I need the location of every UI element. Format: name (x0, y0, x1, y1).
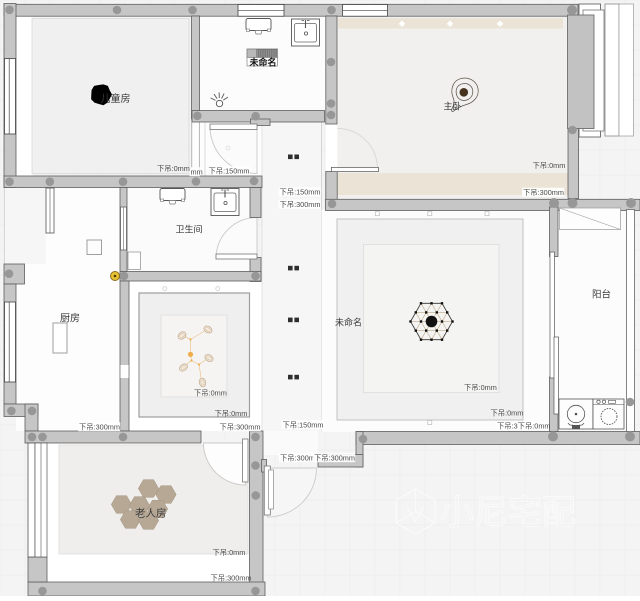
svg-text:下吊:0mm: 下吊:0mm (533, 161, 566, 170)
svg-text:主卧: 主卧 (444, 101, 462, 112)
svg-text:下吊:150mm: 下吊:150mm (283, 421, 324, 430)
svg-text:下吊:0mm: 下吊:0mm (213, 548, 246, 557)
svg-text:下吊:300mm: 下吊:300mm (523, 188, 564, 197)
svg-text:儿童房: 儿童房 (101, 92, 131, 105)
svg-text:厨房: 厨房 (60, 312, 80, 325)
svg-text:下吊:0mm: 下吊:0mm (215, 409, 248, 418)
svg-text:卫生间: 卫生间 (176, 224, 203, 235)
svg-text:下吊:300mm: 下吊:300mm (280, 200, 321, 209)
svg-text:下吊:150mm: 下吊:150mm (209, 167, 250, 176)
svg-text:下吊:0mm: 下吊:0mm (464, 383, 497, 392)
svg-text:下吊:3下吊:0mm: 下吊:3下吊:0mm (497, 422, 551, 431)
svg-text:下吊:300m: 下吊:300m (280, 454, 315, 463)
svg-text:老人房: 老人房 (135, 507, 167, 520)
svg-text:下吊:300mm: 下吊:300mm (211, 574, 252, 583)
svg-text:下吊:0mm: 下吊:0mm (491, 409, 524, 418)
svg-text:下吊:0mm: 下吊:0mm (194, 389, 227, 398)
svg-text:未命名: 未命名 (335, 317, 362, 328)
svg-text:下吊:300mm: 下吊:300mm (220, 423, 261, 432)
svg-text:阳台: 阳台 (592, 289, 611, 301)
svg-text:下吊:300mm: 下吊:300mm (314, 454, 355, 463)
svg-text:下吊:150mm: 下吊:150mm (280, 188, 321, 197)
svg-text:未命名: 未命名 (249, 57, 277, 68)
svg-text:小尼宅配: 小尼宅配 (440, 494, 576, 532)
svg-text:下吊:300mm: 下吊:300mm (79, 423, 120, 432)
svg-text:mm: mm (191, 168, 203, 177)
svg-text:下吊:0mm: 下吊:0mm (157, 164, 190, 173)
